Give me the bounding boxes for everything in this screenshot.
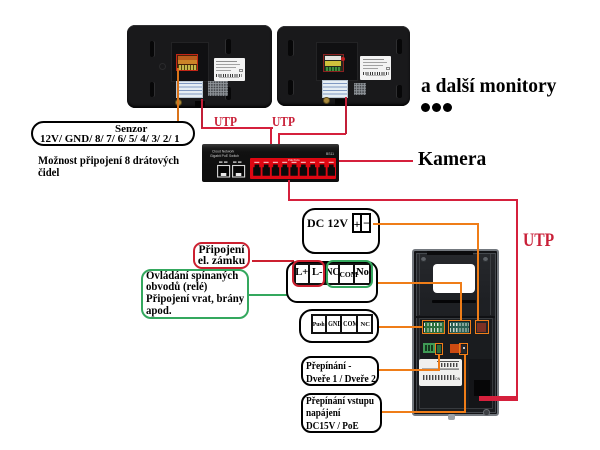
- svg-text:ON: ON: [455, 377, 461, 381]
- svg-text:Cloud Network: Cloud Network: [212, 150, 235, 154]
- svg-text:PoE Ports: PoE Ports: [288, 158, 300, 162]
- svg-text:Gigabit PoE Switch: Gigabit PoE Switch: [210, 154, 239, 158]
- svg-text:BS11: BS11: [326, 152, 334, 156]
